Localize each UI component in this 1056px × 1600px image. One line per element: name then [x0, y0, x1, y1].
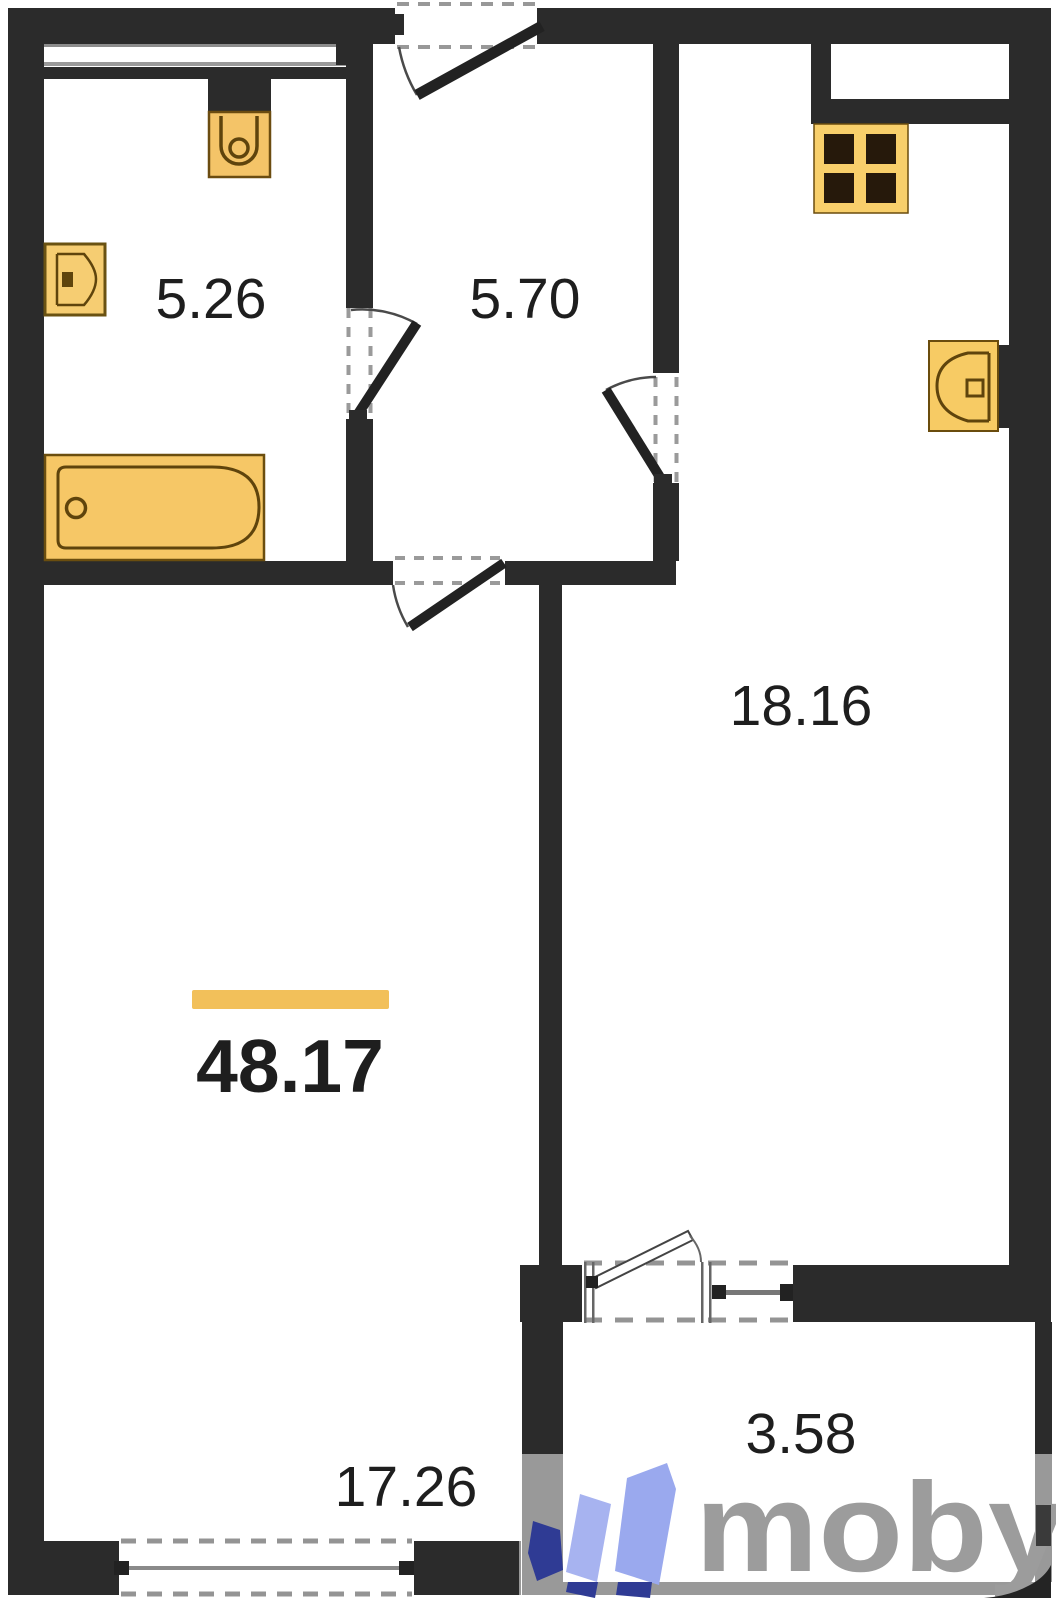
svg-text:5.70: 5.70: [470, 267, 581, 331]
svg-text:17.26: 17.26: [335, 1455, 478, 1519]
svg-text:48.17: 48.17: [196, 1024, 384, 1108]
svg-text:18.16: 18.16: [730, 674, 873, 738]
svg-text:moby: moby: [695, 1456, 1056, 1598]
svg-text:5.26: 5.26: [156, 267, 267, 331]
